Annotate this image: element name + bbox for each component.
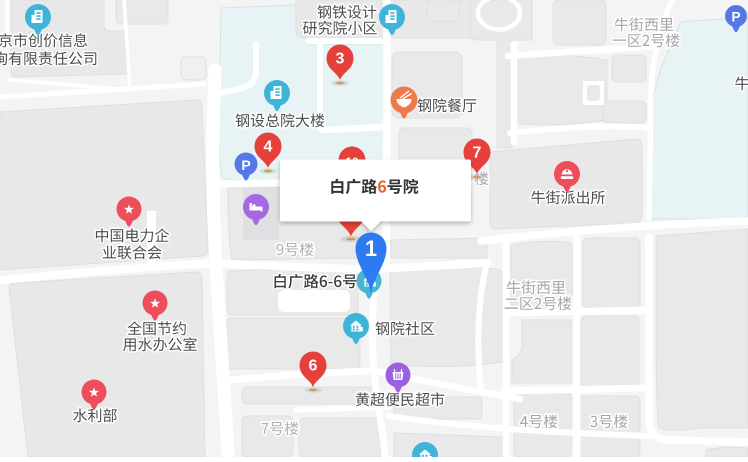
svg-text:3: 3 [336, 51, 345, 68]
svg-text:P: P [241, 157, 250, 173]
svg-text:6: 6 [309, 358, 318, 375]
svg-text:4: 4 [264, 139, 273, 156]
svg-text:7: 7 [473, 145, 482, 162]
svg-text:P: P [731, 10, 740, 25]
svg-text:1: 1 [365, 236, 377, 261]
